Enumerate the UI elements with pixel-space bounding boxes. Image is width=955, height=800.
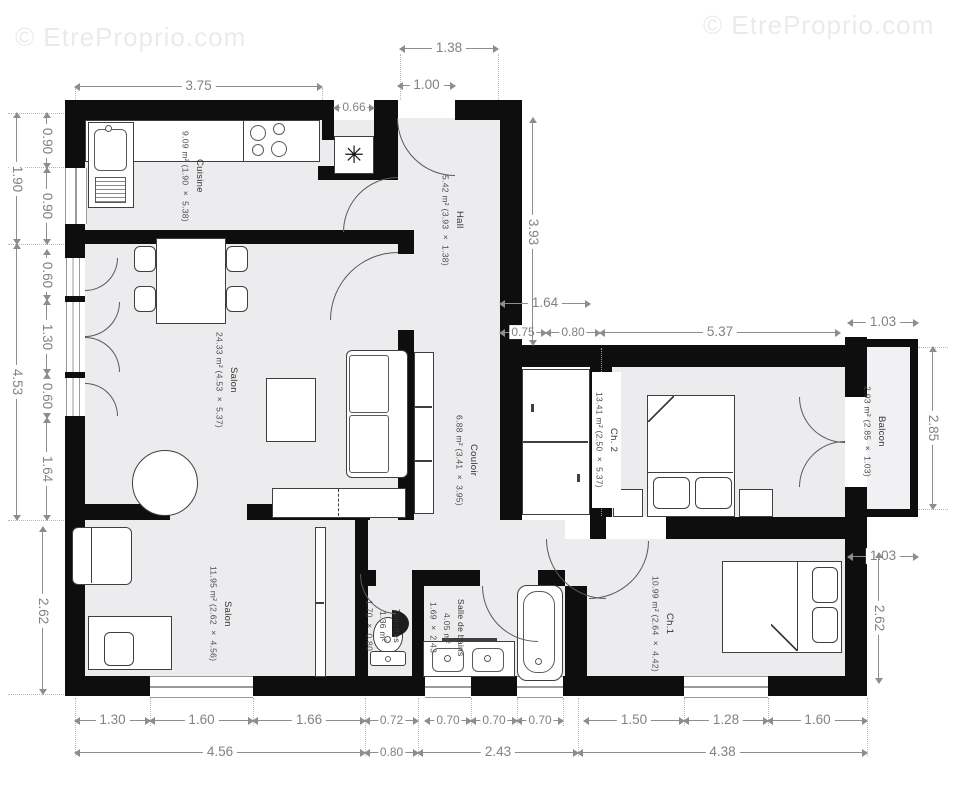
dimension: 1.50	[584, 720, 684, 721]
room-label-cuisine: Cuisine 9.09 m² (1.90 × 5.38)	[178, 120, 207, 232]
dimension: 0.75	[500, 332, 546, 333]
wall	[500, 100, 522, 345]
dimension: 1.38	[400, 48, 498, 49]
dimension: 1.30	[46, 300, 47, 374]
vent-icon: ✳	[334, 136, 374, 174]
dimension: 0.66	[334, 107, 374, 108]
wall	[65, 224, 85, 258]
chair	[226, 246, 248, 272]
chair	[134, 246, 156, 272]
wall	[500, 345, 852, 367]
dimension: 1.64	[500, 303, 590, 304]
room-label-salon: Salon 24.33 m² (4.53 × 5.37)	[212, 320, 241, 440]
floor-plan: © EtreProprio.com © EtreProprio.com	[0, 0, 955, 800]
balcony-wall	[910, 339, 918, 517]
nightstand	[739, 489, 773, 517]
extension-line	[578, 698, 579, 756]
dimension: 3.93	[532, 118, 533, 345]
wall	[398, 230, 414, 254]
dimension: 0.80	[365, 752, 418, 753]
room-label-couloir: Couloir 6.88 m² (3.41 × 3.95)	[452, 400, 481, 520]
room-name: Salon	[226, 320, 241, 440]
sofa	[72, 527, 132, 585]
dimension: 1.03	[848, 322, 918, 323]
window	[66, 302, 80, 372]
chair	[134, 286, 156, 312]
window	[425, 676, 471, 698]
dimension: 4.38	[578, 752, 867, 753]
dimension: 0.72	[365, 720, 418, 721]
wall	[65, 230, 398, 244]
room-label-toilettes: Toilettes 1.36 m² 1.70 × 0.80	[362, 580, 403, 672]
sideboard	[272, 488, 406, 518]
wall	[845, 487, 867, 527]
dimension: 0.60	[46, 374, 47, 418]
stove	[243, 120, 320, 162]
room-name: Cuisine	[192, 120, 207, 232]
pillow	[653, 477, 690, 509]
closet	[414, 352, 434, 514]
extension-line	[365, 698, 366, 756]
window	[65, 168, 87, 224]
balcony-wall	[850, 339, 918, 347]
dimension: 2.62	[878, 553, 879, 683]
dimension: 4.56	[75, 752, 365, 753]
closet	[522, 369, 590, 515]
pillow	[812, 607, 838, 643]
room-name: Salon	[220, 558, 235, 670]
pillow	[695, 477, 732, 509]
extension-line	[418, 698, 419, 756]
dimension: 2.85	[932, 347, 933, 509]
dimension: 2.43	[418, 752, 578, 753]
extension-line	[867, 698, 868, 756]
balcony-wall	[850, 509, 918, 517]
pillow	[812, 567, 838, 603]
wall	[65, 100, 322, 120]
room-label-balcon: Balcon 2.93 m² (2.85 × 1.03)	[860, 372, 889, 490]
room-label-ch1: Ch.1 10.99 m² (2.64 × 4.42)	[648, 572, 677, 676]
wall	[845, 525, 867, 696]
dimension: 1.60	[150, 720, 253, 721]
dimension: 0.90	[46, 113, 47, 168]
extension-line	[498, 54, 499, 100]
extension-line	[400, 54, 401, 100]
dimension: 0.80	[546, 332, 600, 333]
wall	[65, 100, 85, 168]
dining-table	[156, 238, 226, 324]
dimension: 3.75	[75, 86, 322, 87]
room-name: Balcon	[874, 372, 889, 490]
wall	[455, 100, 500, 120]
room-label-ch2: Ch. 2 13.41 m² (2.50 × 5.37)	[592, 372, 621, 508]
room-name: Ch. 2	[606, 372, 621, 508]
wall	[500, 367, 522, 520]
wall	[590, 517, 606, 539]
extension-line	[75, 698, 76, 756]
kitchen-sink	[88, 122, 134, 208]
window	[66, 378, 80, 416]
closet	[315, 527, 326, 677]
dimension: 1.00	[398, 85, 455, 86]
dimension: 0.70	[425, 720, 471, 721]
room-name: Toilettes	[389, 580, 403, 672]
wall	[412, 570, 424, 696]
coffee-table	[266, 378, 316, 442]
dimension: 1.66	[253, 720, 365, 721]
room-name: Salle de bains	[453, 582, 467, 674]
room-name: Hall	[452, 160, 467, 280]
room-name: Ch.1	[662, 572, 677, 676]
room-label-hall: Hall 5.42 m² (3.93 × 1.38)	[438, 160, 467, 280]
wall	[65, 676, 150, 696]
armchair	[132, 450, 198, 516]
window	[66, 258, 80, 296]
dimension: 1.64	[46, 418, 47, 520]
watermark: © EtreProprio.com	[15, 22, 246, 53]
wall	[666, 517, 852, 539]
room-label-salon2: Salon 11.95 m² (2.62 × 4.56)	[206, 558, 235, 670]
sofa	[346, 350, 408, 478]
dimension: 1.30	[75, 720, 150, 721]
dimension: 0.90	[46, 168, 47, 244]
dimension: 0.60	[46, 250, 47, 300]
dimension: 2.62	[42, 527, 43, 694]
dimension: 1.60	[768, 720, 867, 721]
watermark: © EtreProprio.com	[703, 10, 934, 41]
wall	[563, 676, 684, 696]
dimension: 1.90	[16, 113, 17, 244]
room-label-sdb: Salle de bains 4.05 m² 1.69 × 2.43	[426, 582, 467, 674]
dimension: 1.03	[848, 556, 918, 557]
desk-chair	[104, 632, 134, 666]
dimension: 0.70	[471, 720, 517, 721]
room-name: Couloir	[466, 400, 481, 520]
extension-line	[8, 694, 64, 695]
dimension: 5.37	[600, 332, 840, 333]
dimension: 4.53	[16, 244, 17, 520]
window	[684, 676, 768, 698]
wall	[471, 676, 517, 696]
window	[150, 676, 253, 698]
dimension: 1.28	[684, 720, 768, 721]
chair	[226, 286, 248, 312]
dimension: 0.70	[517, 720, 563, 721]
wall	[253, 676, 370, 696]
